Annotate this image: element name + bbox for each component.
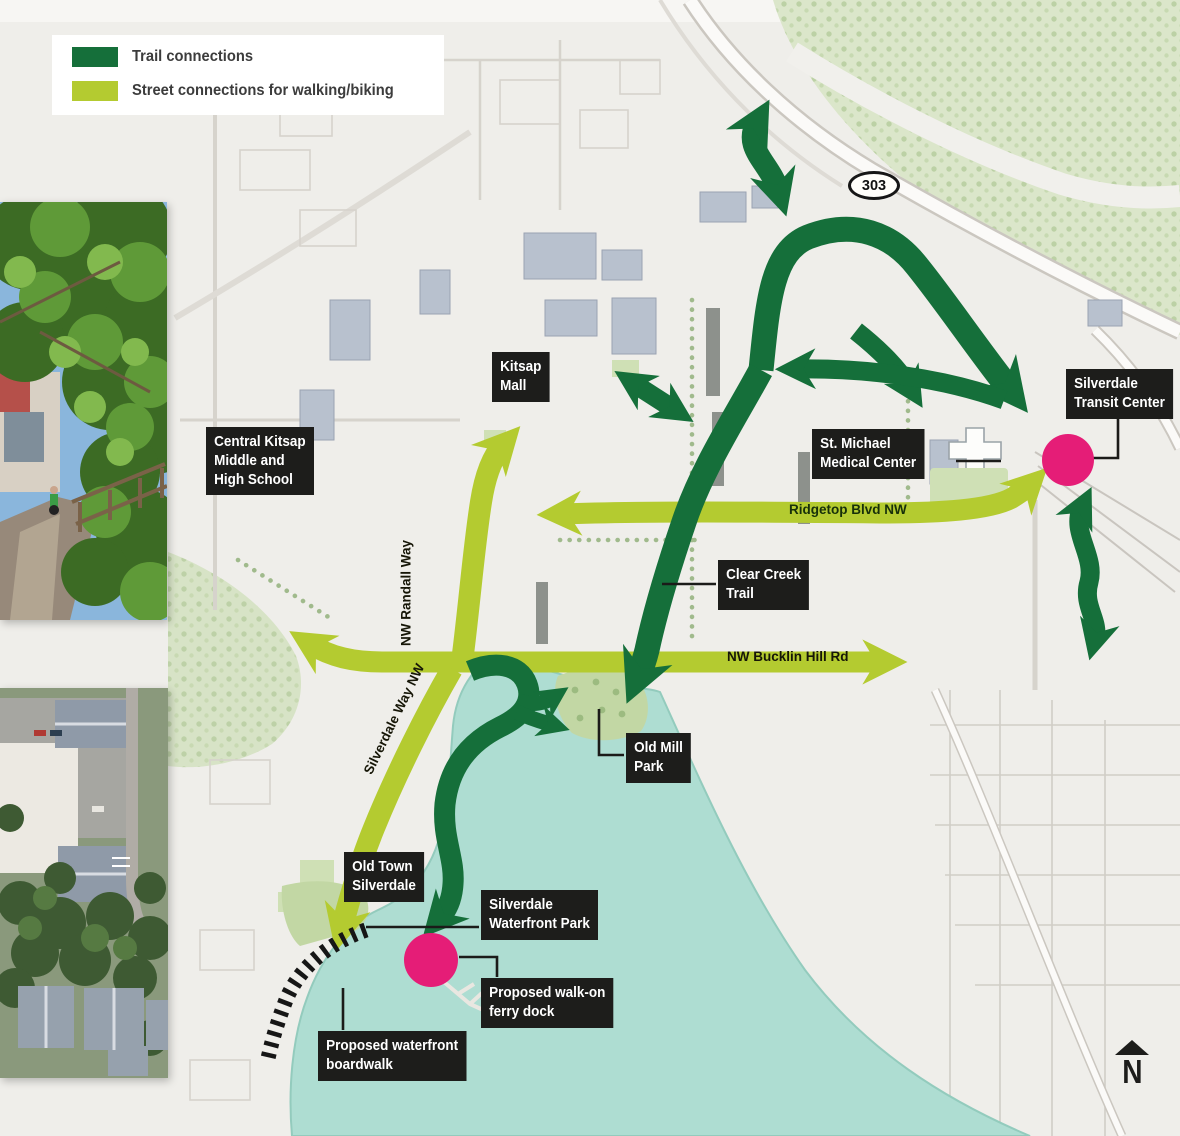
legend-item-label: Street connections for walking/biking bbox=[132, 82, 394, 100]
legend-item-trail: Trail connections bbox=[72, 47, 264, 67]
trail-arrow-north-twoway bbox=[753, 122, 779, 192]
trail-photo-art bbox=[0, 202, 167, 620]
trail-arrow-to-clear-creek bbox=[797, 369, 1004, 400]
trail-arrow-mall-creek-twoway bbox=[633, 383, 675, 410]
label-old-mill-park: Old Mill Park bbox=[626, 733, 691, 783]
transit-center-marker-dot bbox=[1042, 434, 1094, 486]
label-old-town-silverdale: Old Town Silverdale bbox=[344, 852, 424, 902]
label-silverdale-waterfront-park: Silverdale Waterfront Park bbox=[481, 890, 598, 940]
clear-creek-trail-band bbox=[638, 370, 761, 677]
aerial-photo-art bbox=[0, 688, 168, 1078]
label-silverdale-transit-center: Silverdale Transit Center bbox=[1066, 369, 1173, 419]
trail-arrow-transit-south-twoway bbox=[1079, 507, 1096, 639]
label-kitsap-mall: Kitsap Mall bbox=[492, 352, 549, 402]
route-303-shield: 303 bbox=[848, 171, 900, 200]
trail-waterfront-band bbox=[439, 665, 529, 919]
street-color-swatch bbox=[72, 81, 118, 101]
street-label-ridgetop: Ridgetop Blvd NW bbox=[789, 502, 907, 517]
label-central-kitsap-schools: Central Kitsap Middle and High School bbox=[206, 427, 314, 495]
ferry-dock-marker-dot bbox=[404, 933, 458, 987]
street-label-bucklin: NW Bucklin Hill Rd bbox=[727, 649, 849, 664]
street-label-randall: NW Randall Way bbox=[399, 540, 414, 646]
north-arrow-label: N bbox=[1113, 1055, 1150, 1088]
street-connection-to-kitsap-mall bbox=[463, 445, 503, 654]
label-proposed-boardwalk: Proposed waterfront boardwalk bbox=[318, 1031, 466, 1081]
label-proposed-ferry-dock: Proposed walk-on ferry dock bbox=[481, 978, 613, 1028]
legend-item-label: Trail connections bbox=[132, 48, 253, 66]
trail-photo-inset bbox=[0, 202, 167, 620]
trail-color-swatch bbox=[72, 47, 118, 67]
label-st-michael-medical-center: St. Michael Medical Center bbox=[812, 429, 924, 479]
legend-item-street: Street connections for walking/biking bbox=[72, 81, 416, 101]
trail-fork-old-mill-upper bbox=[519, 697, 554, 704]
legend: Trail connections Street connections for… bbox=[52, 35, 444, 115]
north-arrow: N bbox=[1110, 1040, 1154, 1088]
aerial-photo-inset bbox=[0, 688, 168, 1078]
silverdale-trail-map: Trail connections Street connections for… bbox=[0, 0, 1180, 1136]
connections-overlay bbox=[0, 0, 1180, 1136]
label-clear-creek-trail: Clear Creek Trail bbox=[718, 560, 809, 610]
